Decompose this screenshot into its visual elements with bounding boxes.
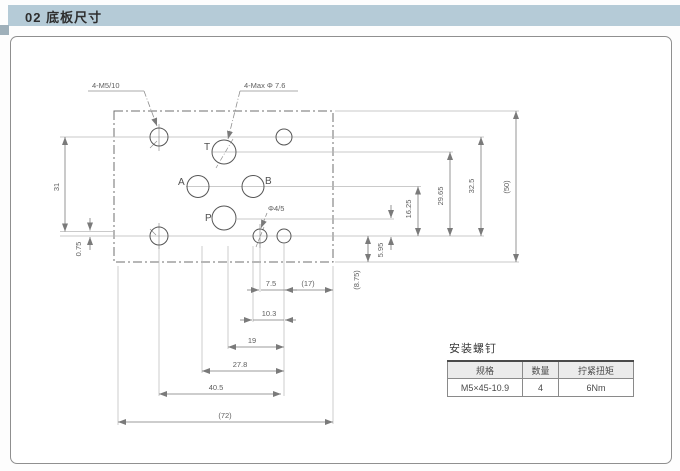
page: { "page": { "title": "02 底板尺寸" }, "color… bbox=[0, 0, 680, 471]
dim-31: 31 bbox=[52, 183, 61, 191]
mounting-screw-section: 安装螺钉 规格 数量 拧紧扭矩 M5×45-10.9 4 6Nm bbox=[447, 340, 634, 397]
dim-19: 19 bbox=[248, 336, 256, 345]
mounting-screw-table: 规格 数量 拧紧扭矩 M5×45-10.9 4 6Nm bbox=[447, 360, 634, 397]
port-label-b: B bbox=[265, 176, 272, 187]
dim-72: (72) bbox=[218, 411, 232, 420]
bolt-callout-label: 4-M5/10 bbox=[92, 81, 120, 90]
callout-leaders bbox=[88, 91, 298, 228]
dim-0-75: 0.75 bbox=[74, 242, 83, 257]
table-header-row: 规格 数量 拧紧扭矩 bbox=[448, 361, 634, 379]
port-label-a: A bbox=[178, 177, 185, 188]
cell-qty: 4 bbox=[523, 379, 559, 397]
col-header-spec: 规格 bbox=[448, 361, 523, 379]
dim-7-5: 7.5 bbox=[266, 279, 276, 288]
dim-50: (50) bbox=[502, 180, 511, 194]
dimension-drawing: T A B P 4-M5/10 4-Max Φ 7.6 Φ4/5 bbox=[0, 0, 680, 471]
dim-17: (17) bbox=[301, 279, 315, 288]
dim-27-8: 27.8 bbox=[233, 360, 248, 369]
port-label-t: T bbox=[204, 142, 210, 153]
col-header-torque: 拧紧扭矩 bbox=[559, 361, 634, 379]
cell-torque: 6Nm bbox=[559, 379, 634, 397]
dim-5-95: 5.95 bbox=[376, 243, 385, 258]
dim-10-3: 10.3 bbox=[262, 309, 277, 318]
dim-16-25: 16.25 bbox=[404, 200, 413, 219]
dim-8-75: (8.75) bbox=[352, 270, 361, 290]
col-header-qty: 数量 bbox=[523, 361, 559, 379]
table-row: M5×45-10.9 4 6Nm bbox=[448, 379, 634, 397]
dim-29-65: 29.65 bbox=[436, 187, 445, 206]
dim-32-5: 32.5 bbox=[467, 179, 476, 194]
port-callout-label: 4-Max Φ 7.6 bbox=[244, 81, 285, 90]
port-label-p: P bbox=[205, 213, 212, 224]
mounting-screw-title: 安装螺钉 bbox=[449, 340, 634, 356]
dim-40-5: 40.5 bbox=[209, 383, 224, 392]
pilot-callout-label: Φ4/5 bbox=[268, 204, 284, 213]
port-p-hole bbox=[212, 206, 236, 230]
cell-spec: M5×45-10.9 bbox=[448, 379, 523, 397]
